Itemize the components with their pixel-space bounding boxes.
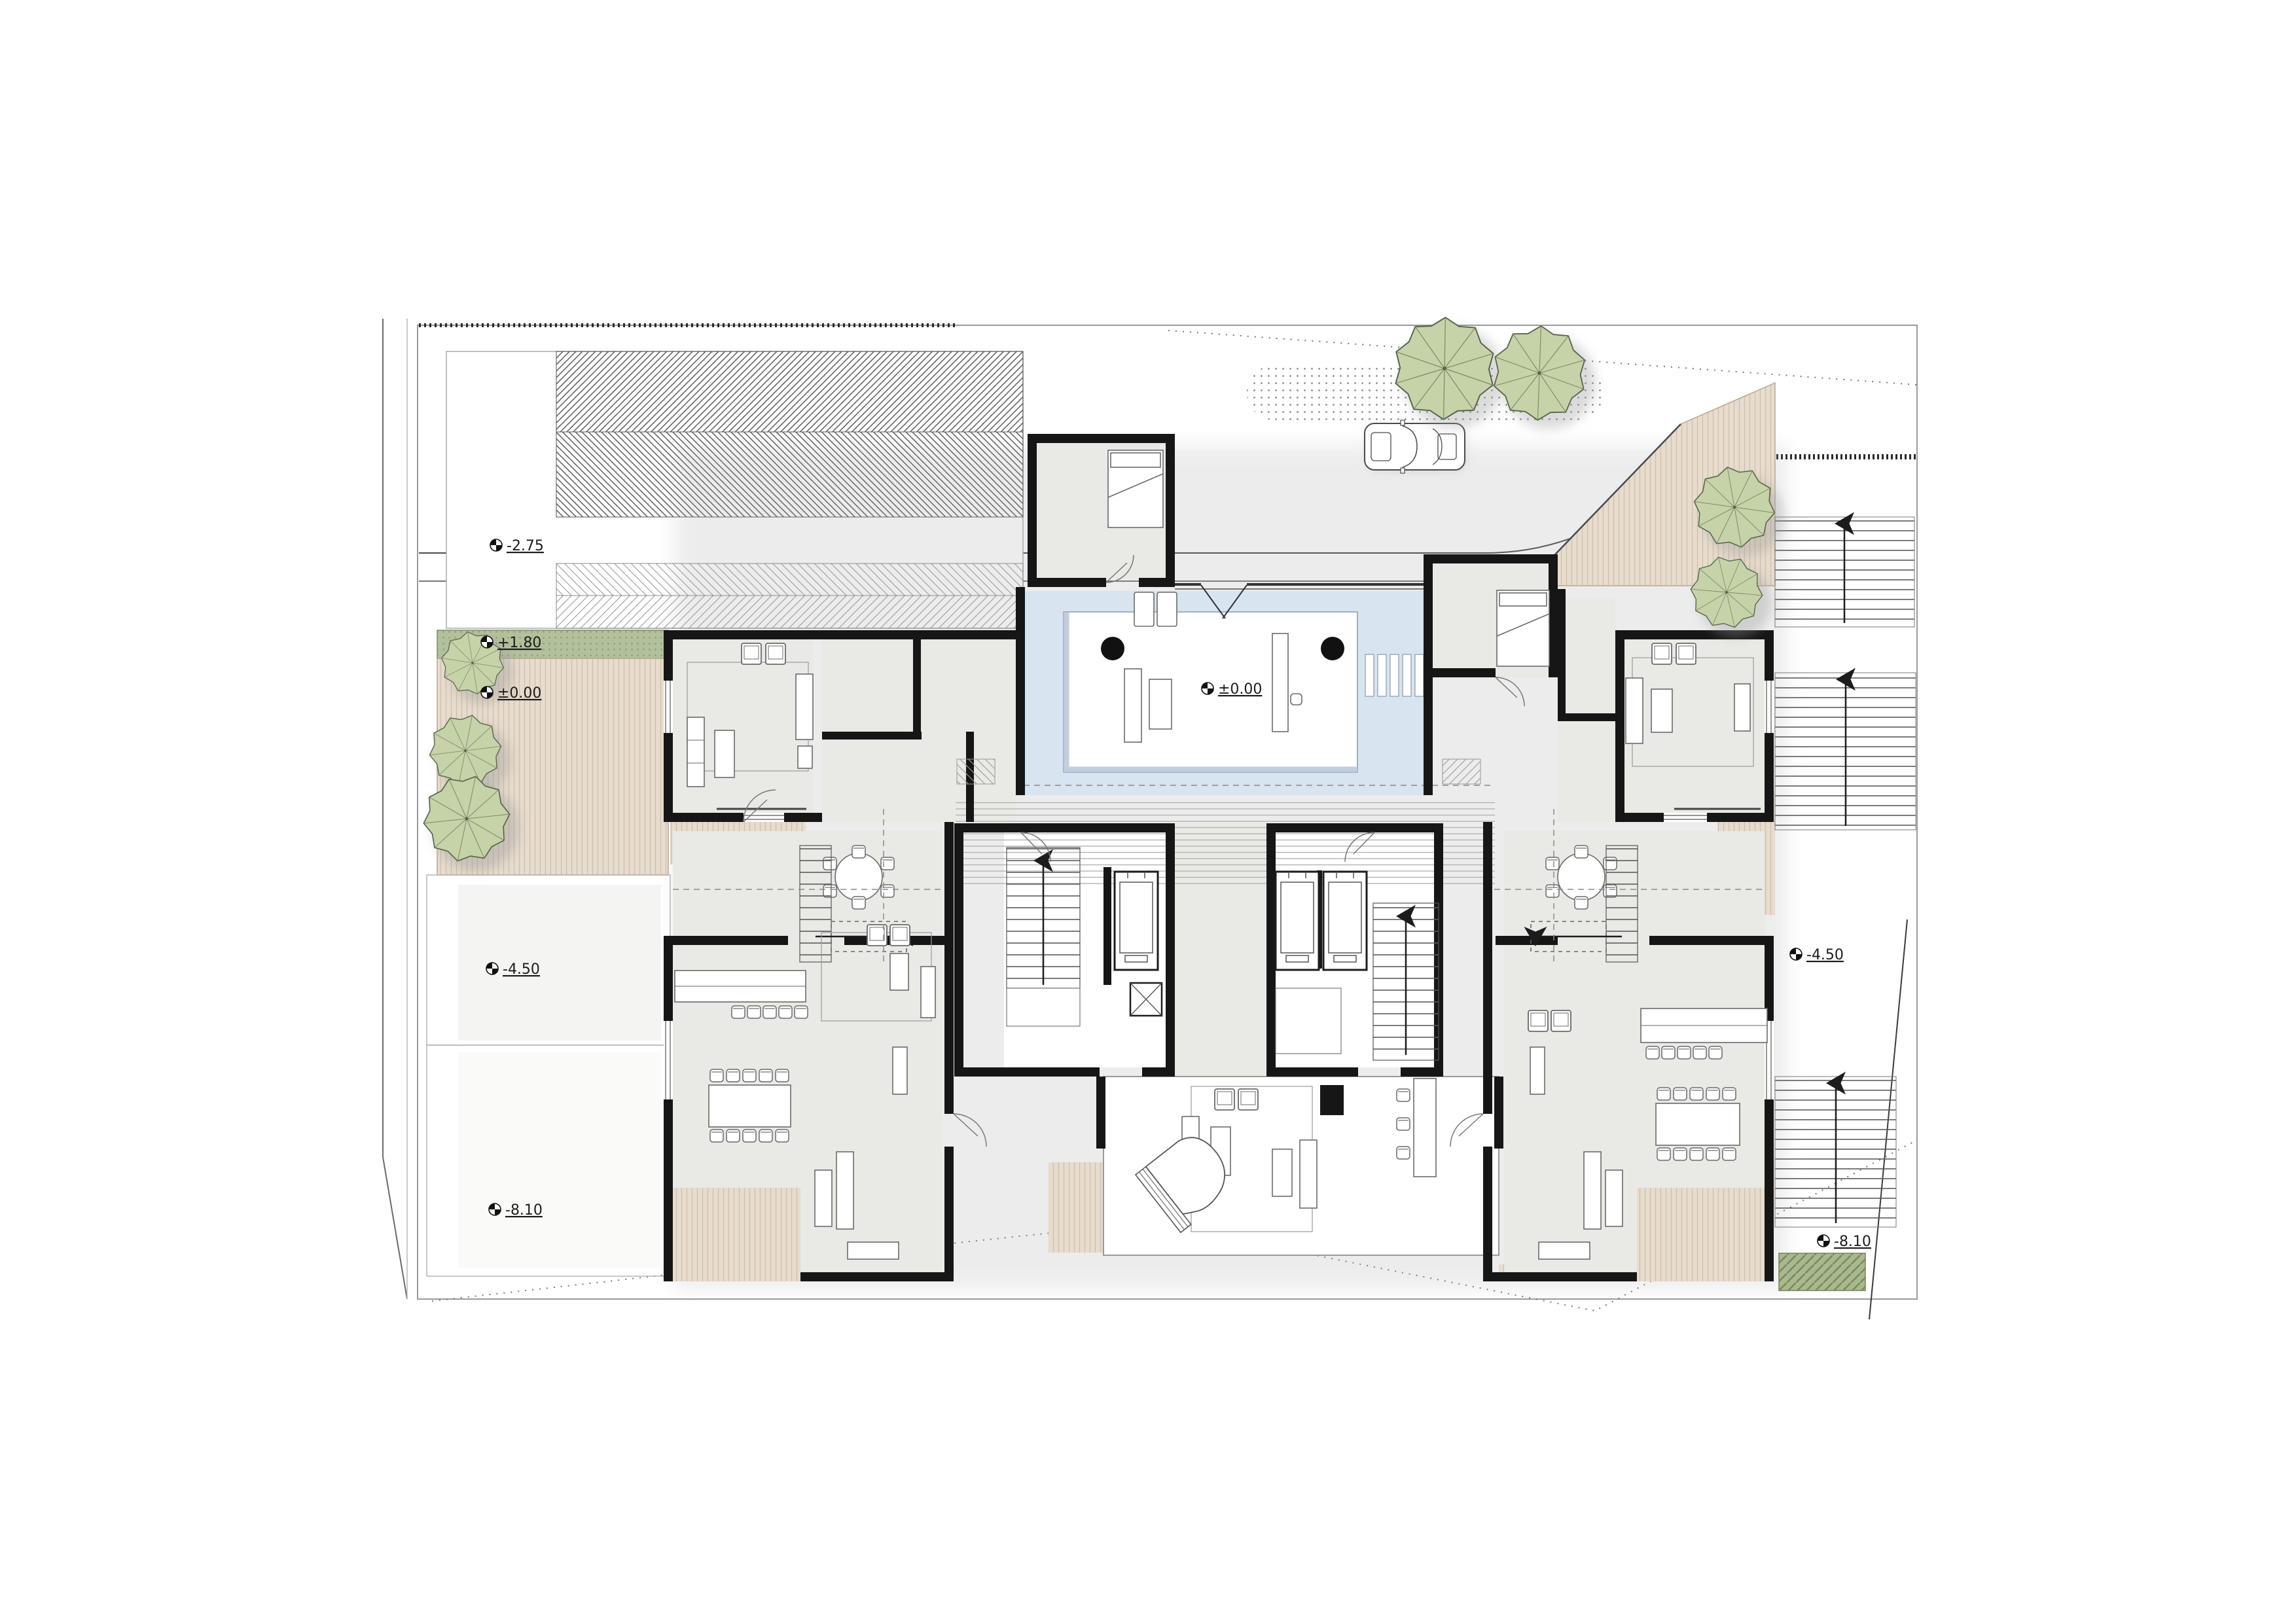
- coffee-table-icon: [890, 954, 908, 990]
- west-parcel-line: [383, 319, 407, 1299]
- coffee-table-icon: [1651, 689, 1672, 732]
- svg-text:-2.75: -2.75: [507, 538, 544, 554]
- coffee-table-icon: [715, 730, 734, 777]
- column: [1320, 1085, 1344, 1115]
- svg-text:±0.00: ±0.00: [497, 685, 541, 702]
- coffee-table-icon: [1272, 1149, 1292, 1196]
- sofa-icon: [1626, 678, 1643, 743]
- deck-lounge-west: [1049, 1162, 1103, 1253]
- svg-text:-4.50: -4.50: [503, 961, 540, 978]
- car-mirror: [1401, 420, 1405, 425]
- bedroom-right: [1497, 590, 1549, 666]
- dining-table-icon: [1656, 1103, 1740, 1145]
- svg-text:-4.50: -4.50: [1806, 947, 1844, 963]
- lot-shade-2: [458, 1052, 661, 1268]
- east-exterior-stairs: [1775, 517, 1916, 1227]
- outdoor-sofa-icon: [1124, 669, 1141, 742]
- sofa-icon: [687, 717, 704, 787]
- console-icon: [893, 1047, 907, 1094]
- svg-text:-8.10: -8.10: [505, 1202, 543, 1219]
- console-icon: [1734, 684, 1750, 731]
- outdoor-table-icon: [1149, 679, 1172, 729]
- car-mirror: [1401, 468, 1405, 473]
- elevator-icon: [1115, 872, 1158, 970]
- bar-counter-icon: [1414, 1079, 1436, 1177]
- sofa-icon: [836, 1152, 853, 1229]
- green-hatch-strip-southeast: [1779, 1253, 1865, 1291]
- lot-shade-1: [458, 885, 661, 1041]
- sun-lounger-icon: [1157, 592, 1177, 626]
- console-icon: [1530, 1047, 1545, 1094]
- deck-south-right: [1637, 1188, 1765, 1281]
- elevator-icon: [1276, 872, 1319, 970]
- sofa-icon: [848, 1242, 899, 1259]
- sofa-icon: [1584, 1152, 1601, 1229]
- stool-icon: [1291, 694, 1302, 705]
- ramp-hatch-band-1: [556, 351, 1023, 432]
- chaise-icon: [1605, 1170, 1623, 1226]
- svg-text:+1.80: +1.80: [497, 635, 541, 651]
- sun-lounger-icon: [1134, 592, 1154, 626]
- pool-steps: [1365, 654, 1424, 696]
- sofa-icon: [1300, 1140, 1317, 1208]
- dining-left: [709, 1069, 791, 1142]
- level-label-east-mid: -4.50: [1790, 947, 1844, 963]
- chaise-icon: [815, 1170, 832, 1226]
- sofa-icon: [1539, 1242, 1590, 1259]
- svg-text:-8.10: -8.10: [1834, 1234, 1871, 1250]
- site-floor-plan: -2.75 +1.80 ±0.00 ±0.00 -4.50 -8.10 -4.5…: [0, 0, 2296, 1623]
- sofa-icon: [796, 674, 813, 740]
- dining-right: [1656, 1088, 1740, 1160]
- shower-icon: [957, 759, 995, 784]
- level-label-east-low: -8.10: [1818, 1234, 1871, 1250]
- svg-text:±0.00: ±0.00: [1218, 681, 1262, 698]
- floor-plan-page: -2.75 +1.80 ±0.00 ±0.00 -4.50 -8.10 -4.5…: [0, 0, 2296, 1623]
- bedroom-left: [1108, 450, 1163, 527]
- pool-courtyard: [956, 591, 1495, 885]
- fire-bowl-icon: [1321, 637, 1344, 660]
- deck-south-left: [664, 1188, 800, 1281]
- shaft-vent: [1130, 983, 1162, 1016]
- elevator-icon: [1323, 872, 1367, 970]
- dining-table-icon: [709, 1085, 791, 1127]
- sofa-icon: [921, 967, 935, 1018]
- outdoor-counter-icon: [1272, 633, 1288, 732]
- shower-icon: [1443, 759, 1480, 784]
- fire-bowl-icon: [1101, 637, 1124, 660]
